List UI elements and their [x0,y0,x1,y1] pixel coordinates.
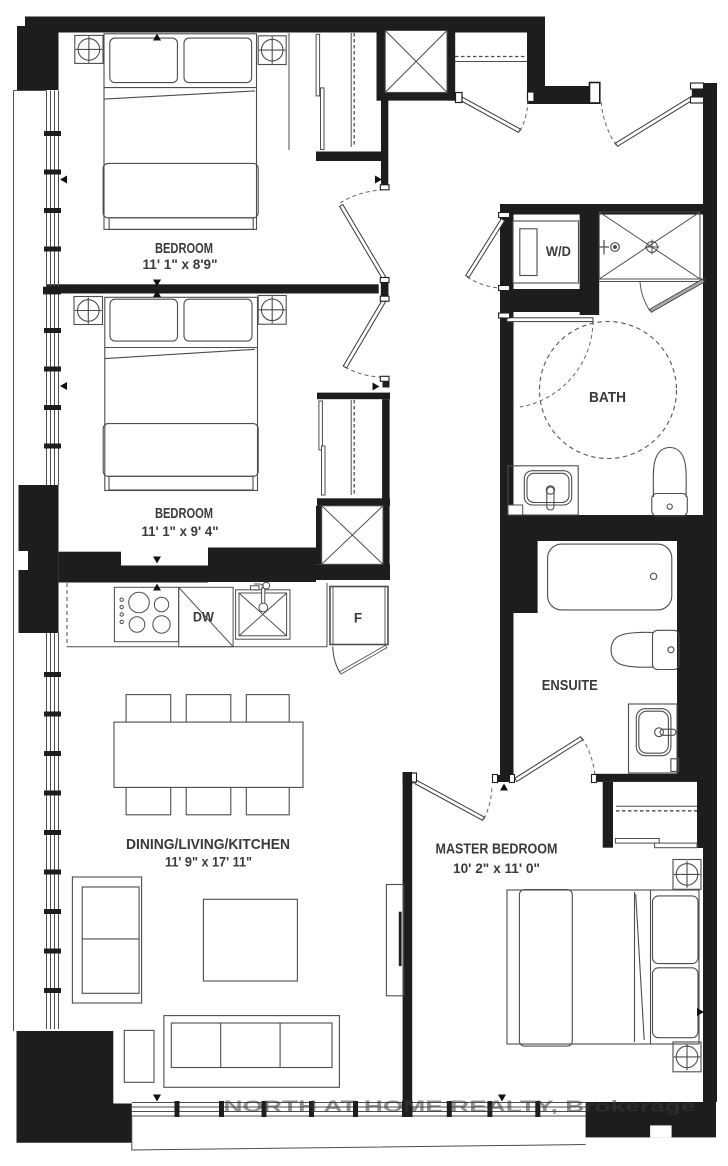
svg-text:DINING/LIVING/KITCHEN: DINING/LIVING/KITCHEN [126,836,290,853]
svg-text:ENSUITE: ENSUITE [542,677,598,694]
svg-text:BEDROOM: BEDROOM [155,240,213,257]
svg-text:DW: DW [193,610,214,625]
svg-text:11' 1" x 8'9": 11' 1" x 8'9" [143,256,218,272]
svg-text:W/D: W/D [546,244,571,259]
svg-text:NORTH AT HOME REALTY, Brokerag: NORTH AT HOME REALTY, Brokerage [224,1099,697,1116]
svg-text:10' 2" x 11' 0": 10' 2" x 11' 0" [453,860,540,876]
svg-text:11' 1" x 9' 4": 11' 1" x 9' 4" [142,523,219,539]
svg-text:BEDROOM: BEDROOM [155,505,213,522]
svg-text:F: F [354,611,362,626]
svg-text:MASTER BEDROOM: MASTER BEDROOM [436,842,558,858]
svg-text:11' 9" x 17' 11": 11' 9" x 17' 11" [165,854,252,870]
svg-text:BATH: BATH [589,389,626,406]
